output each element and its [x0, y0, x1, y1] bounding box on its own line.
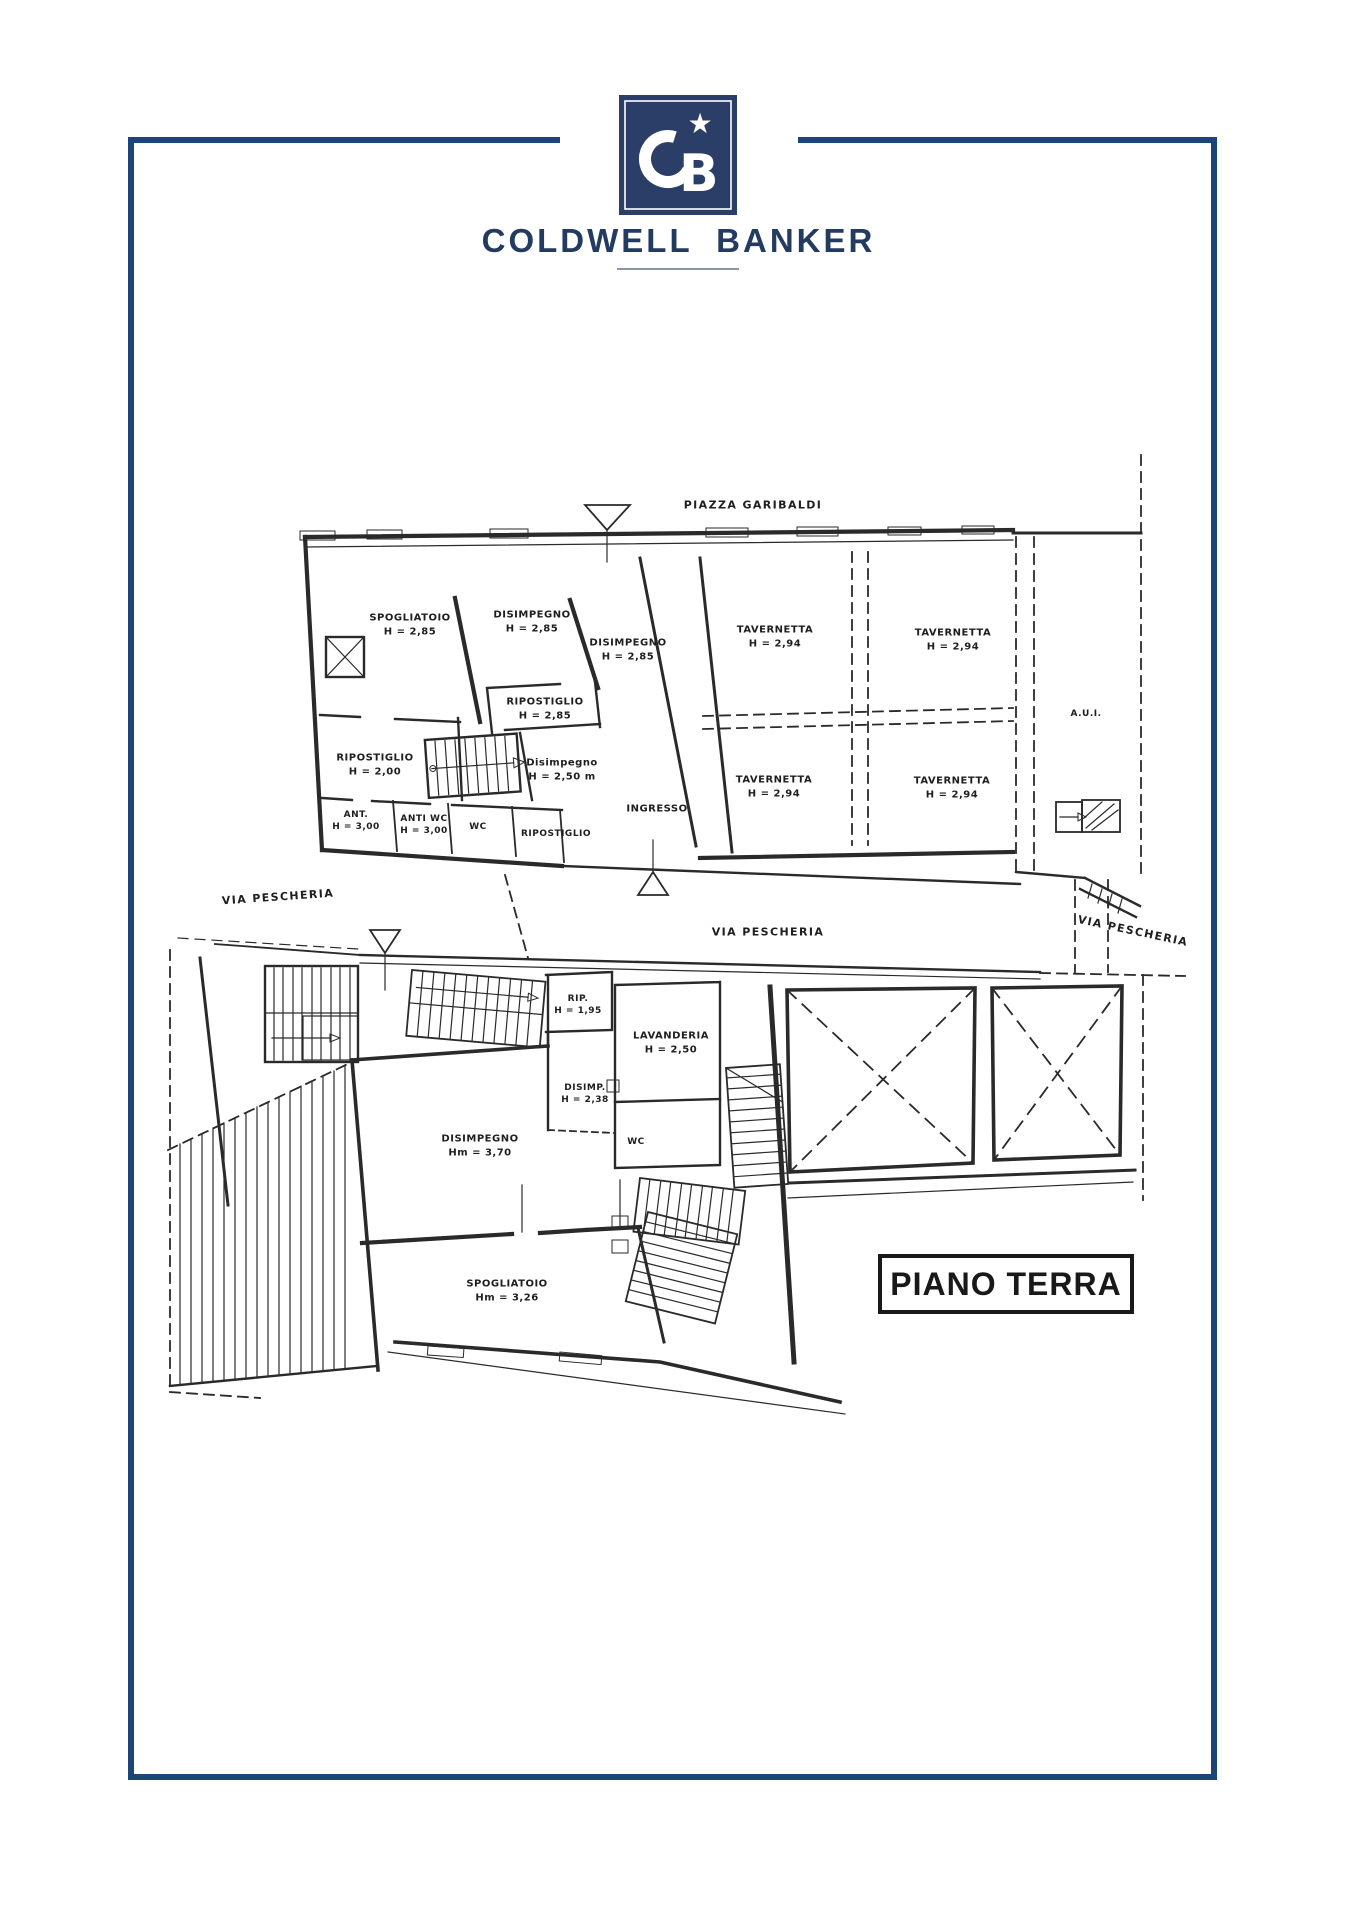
room-label-ingresso: INGRESSO: [626, 802, 687, 816]
room-label-tavernetta-4: TAVERNETTA H = 2,94: [914, 775, 990, 802]
upper-floor-plan: [300, 455, 1141, 972]
room-label-aui: A.U.I.: [1070, 708, 1101, 720]
room-label-tavernetta-2: TAVERNETTA H = 2,94: [915, 627, 991, 654]
room-label-disimpegno-1: DISIMPEGNO H = 2,85: [493, 609, 570, 636]
room-label-wc-upper: WC: [469, 821, 487, 833]
room-label-disimpegno-2: DISIMPEGNO H = 2,85: [589, 637, 666, 664]
plan-title-box: PIANO TERRA: [878, 1254, 1134, 1314]
room-label-wc-lower: WC: [627, 1136, 645, 1148]
stairs-below-wc: [633, 1178, 745, 1245]
street-label-via-pescheria-middle: VIA PESCHERIA: [712, 926, 825, 939]
room-label-ant: ANT. H = 3,00: [332, 809, 380, 833]
stairs-northeast: [626, 1212, 738, 1324]
room-label-disimpegno-3: Disimpegno H = 2,50 m: [526, 757, 598, 784]
room-label-antiwc: ANTI WC H = 3,00: [400, 813, 448, 837]
corridor-stairs: [406, 970, 545, 1047]
room-label-ripostiglio-3: RIPOSTIGLIO: [521, 828, 591, 840]
floor-plan-drawing: [0, 0, 1357, 1920]
document-page: B ★ COLDWELL BANKER: [0, 0, 1357, 1920]
room-label-tavernetta-3: TAVERNETTA H = 2,94: [736, 774, 812, 801]
street-label-piazza-garibaldi: PIAZZA GARIBALDI: [684, 499, 823, 512]
room-label-tavernetta-1: TAVERNETTA H = 2,94: [737, 624, 813, 651]
plan-title: PIANO TERRA: [890, 1266, 1121, 1303]
room-label-spogliatoio-upper: SPOGLIATOIO H = 2,85: [369, 612, 450, 639]
room-label-spogliatoio-lower: SPOGLIATOIO Hm = 3,26: [466, 1278, 547, 1305]
room-label-ripostiglio-1: RIPOSTIGLIO H = 2,85: [506, 696, 583, 723]
lower-floor-plan: [168, 930, 1185, 1414]
room-label-lavanderia: LAVANDERIA H = 2,50: [633, 1030, 709, 1057]
upper-stairs: [425, 733, 527, 798]
room-label-ripostiglio-2: RIPOSTIGLIO H = 2,00: [336, 752, 413, 779]
room-label-disimpegno-lower: DISIMPEGNO Hm = 3,70: [441, 1133, 518, 1160]
room-label-disimp: DISIMP. H = 2,38: [561, 1082, 609, 1106]
room-label-rip: RIP. H = 1,95: [554, 993, 602, 1017]
